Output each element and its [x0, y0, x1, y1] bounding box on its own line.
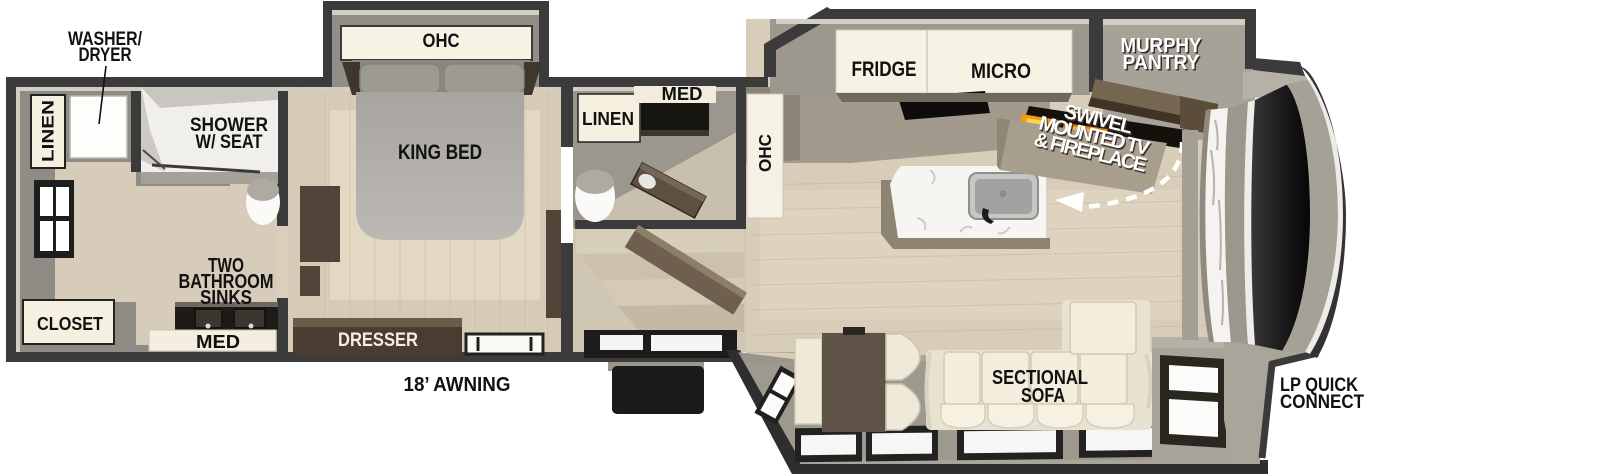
svg-text:MED: MED [196, 331, 240, 352]
svg-text:18’ AWNING: 18’ AWNING [404, 374, 511, 396]
svg-text:PANTRY: PANTRY [1123, 52, 1201, 74]
svg-text:FRIDGE: FRIDGE [852, 57, 917, 81]
svg-text:CONNECT: CONNECT [1280, 391, 1364, 413]
svg-text:CLOSET: CLOSET [37, 313, 104, 334]
svg-text:DRESSER: DRESSER [338, 329, 418, 351]
svg-text:SINKS: SINKS [200, 287, 252, 309]
svg-text:W/ SEAT: W/ SEAT [196, 132, 263, 153]
svg-text:DRYER: DRYER [79, 45, 132, 66]
svg-text:LINEN: LINEN [39, 100, 58, 162]
svg-text:MICRO: MICRO [971, 59, 1031, 83]
svg-text:OHC: OHC [755, 134, 775, 172]
svg-text:KING BED: KING BED [398, 141, 482, 164]
svg-text:OHC: OHC [423, 30, 460, 52]
svg-text:SOFA: SOFA [1021, 384, 1065, 407]
svg-text:MED: MED [662, 83, 703, 104]
svg-text:LINEN: LINEN [582, 108, 634, 129]
